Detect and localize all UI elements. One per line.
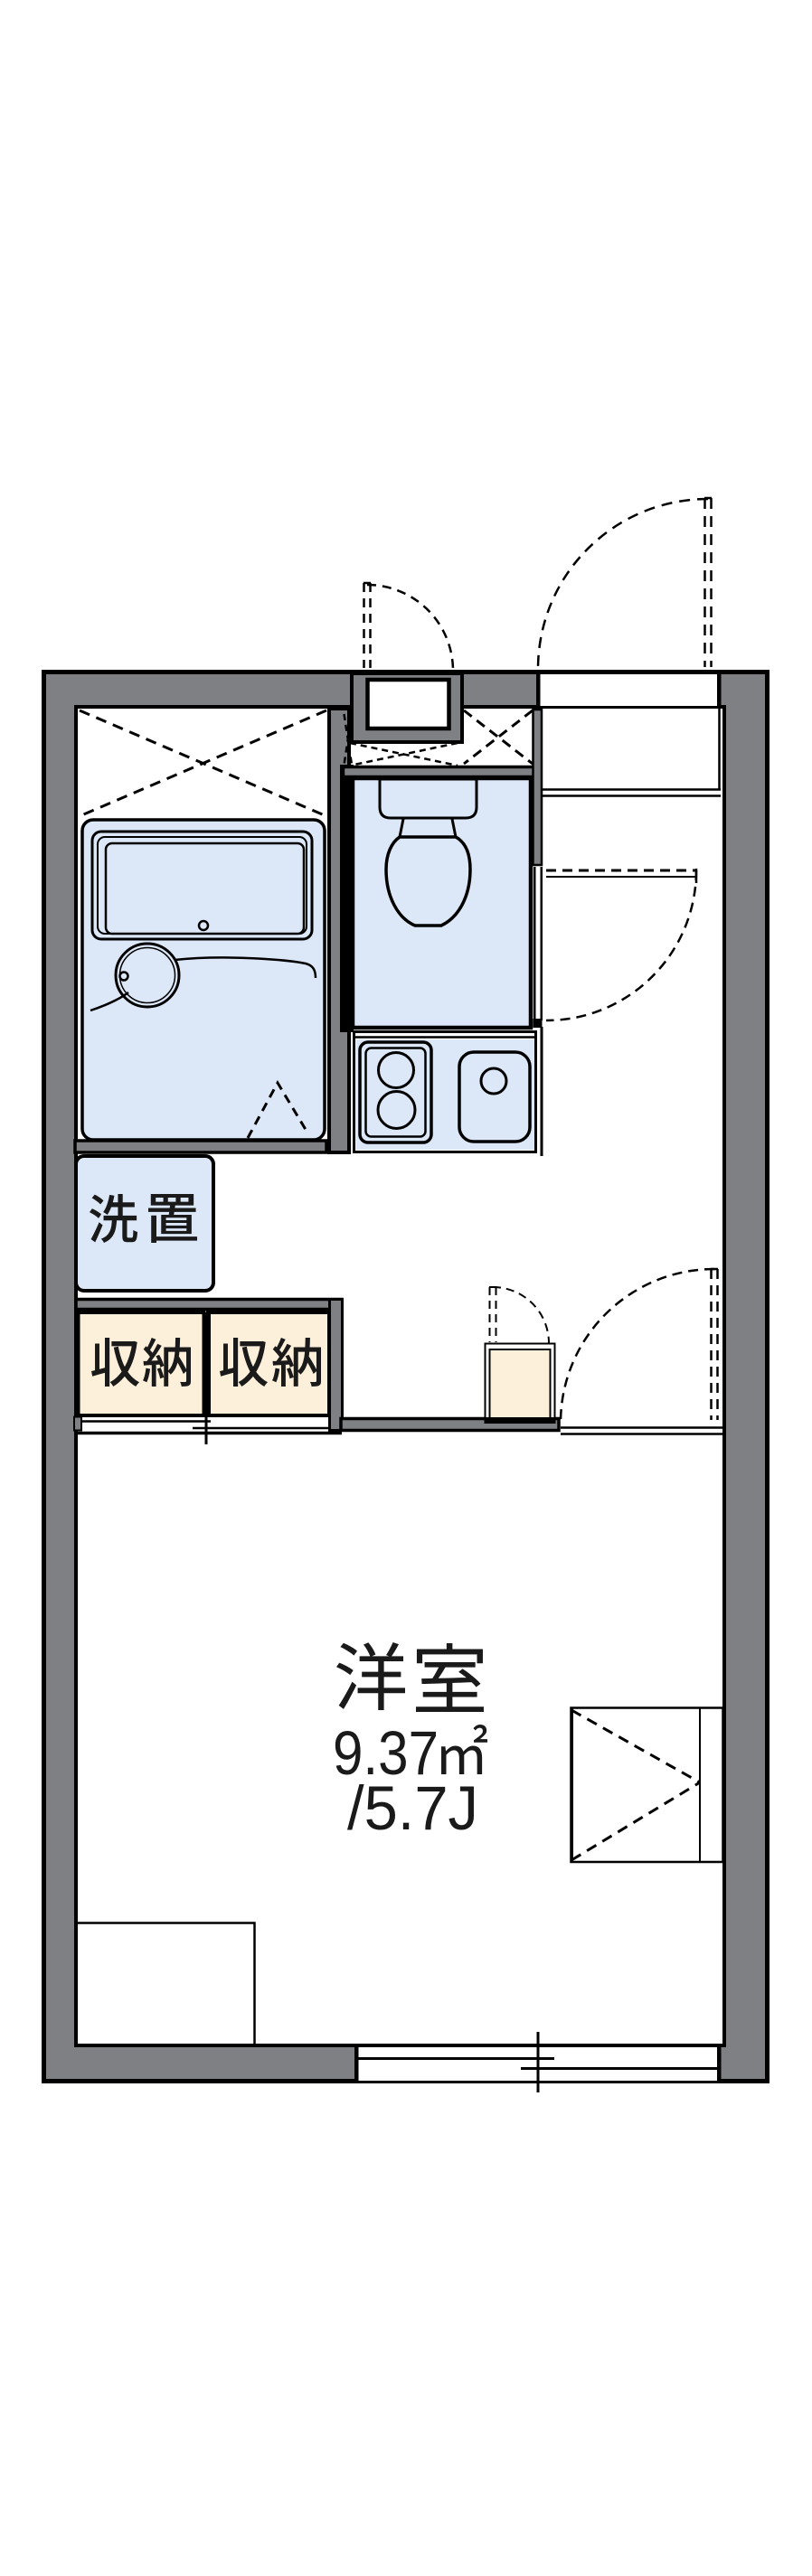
svg-text:/5.7J: /5.7J xyxy=(347,1773,478,1843)
